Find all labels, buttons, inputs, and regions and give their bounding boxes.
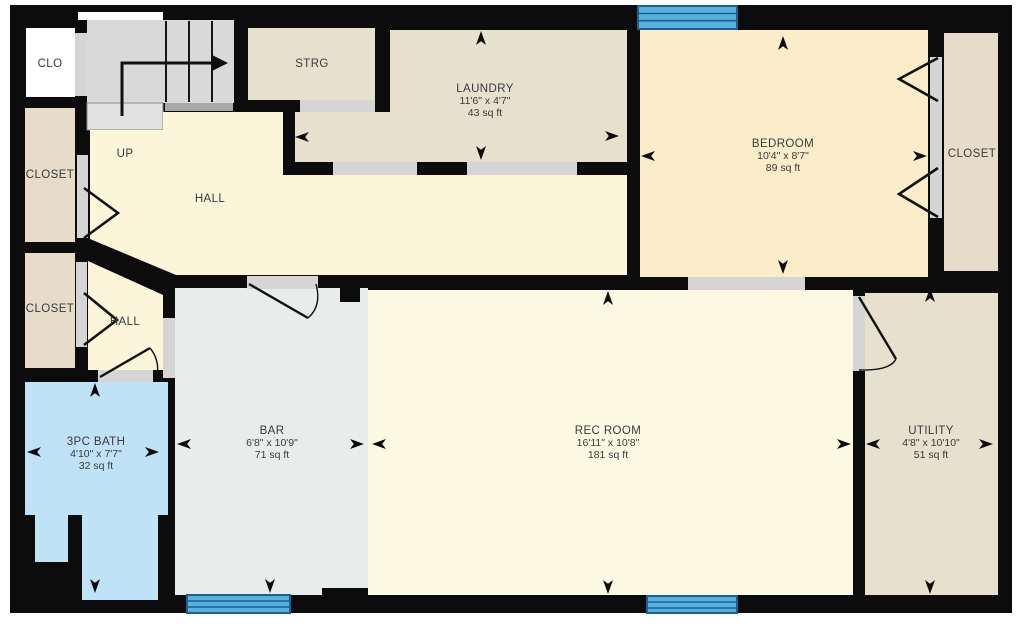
floor-plan-page: CLO UP STRG HALL HALL CLOSET CLOSET CLOS… xyxy=(0,0,1024,628)
wall-stub xyxy=(322,588,368,598)
strg-label: STRG xyxy=(295,58,329,70)
bedroom-area: 89 sq ft xyxy=(766,162,801,174)
hall-lower-label: HALL xyxy=(110,316,141,328)
utility-dims: 4'8" x 10'10" xyxy=(902,437,960,449)
clo-label: CLO xyxy=(38,58,63,70)
laundry-area: 43 sq ft xyxy=(468,107,503,119)
laundry-label: LAUNDRY xyxy=(456,83,514,95)
wall-gap xyxy=(78,12,163,20)
bar-label: BAR xyxy=(260,425,285,437)
closet-lower-opening xyxy=(76,262,87,347)
rec-room-area: 181 sq ft xyxy=(588,449,628,461)
bath-area: 32 sq ft xyxy=(79,460,114,472)
stair-nosing xyxy=(165,103,233,111)
floor-plan-canvas: CLO UP STRG HALL HALL CLOSET CLOSET CLOS… xyxy=(0,0,1024,628)
hall-bar-opening xyxy=(163,318,175,378)
bedroom-closet-opening xyxy=(930,57,942,218)
laundry-dims: 11'6" x 4'7" xyxy=(460,95,511,107)
bath-label: 3PC BATH xyxy=(67,436,126,448)
window xyxy=(638,6,737,29)
wall-stub xyxy=(928,218,944,271)
up-label: UP xyxy=(117,148,134,160)
closet-bedroom-label: CLOSET xyxy=(948,148,996,160)
window xyxy=(187,595,290,613)
closet-upper-opening xyxy=(77,155,88,238)
window xyxy=(647,596,737,613)
bath-dims: 4'10" x 7'7" xyxy=(70,448,122,460)
bar-door-opening xyxy=(247,276,318,289)
bar-dims: 6'8" x 10'9" xyxy=(246,437,298,449)
bedroom-label: BEDROOM xyxy=(752,138,814,150)
strg-opening xyxy=(300,100,375,112)
hall-upper-label: HALL xyxy=(195,193,226,205)
rec-room-dims: 16'11" x 10'8" xyxy=(577,437,640,449)
bedroom-dims: 10'4" x 8'7" xyxy=(757,150,809,162)
room-laundry-alcove xyxy=(295,112,390,162)
bar-area: 71 sq ft xyxy=(255,449,290,461)
stair-landing xyxy=(87,103,163,130)
utility-door-opening xyxy=(853,296,865,371)
bath-door-opening xyxy=(98,370,153,382)
laundry-opening-left xyxy=(333,162,417,175)
closet-upper-label: CLOSET xyxy=(26,169,74,181)
utility-area: 51 sq ft xyxy=(914,449,949,461)
laundry-opening-right xyxy=(467,162,577,175)
room-bath-alcove xyxy=(35,515,68,562)
wall-stub xyxy=(340,288,360,302)
bedroom-opening xyxy=(688,277,805,290)
rec-room-label: REC ROOM xyxy=(575,425,641,437)
wall-stub xyxy=(928,43,944,57)
closet-lower-label: CLOSET xyxy=(26,303,74,315)
utility-label: UTILITY xyxy=(908,425,954,437)
clo-door-opening xyxy=(75,33,87,96)
